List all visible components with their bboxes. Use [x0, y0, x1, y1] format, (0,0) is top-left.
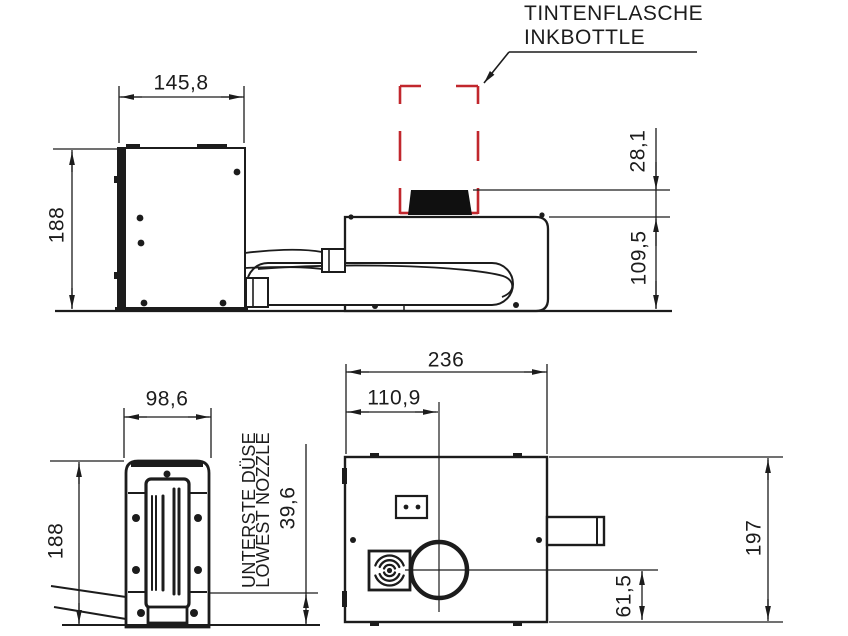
dim-head-front-height: 188: [46, 523, 67, 560]
drawing-canvas: [0, 0, 848, 636]
bottle-cap: [408, 190, 472, 215]
dim-controller-height: 109,5: [629, 230, 650, 285]
dim-head-front-width: 98,6: [146, 389, 189, 410]
side-spout: [547, 517, 604, 545]
print-head-side-view: [114, 144, 245, 310]
dim-bottle-offset: 110,9: [367, 388, 421, 409]
annotation-line2: INKBOTTLE: [524, 27, 645, 48]
dim-head-side-width: 145,8: [153, 73, 208, 94]
dim-controller-width: 236: [428, 350, 465, 371]
dim-head-side-height: 188: [47, 207, 68, 244]
technical-drawing-page: TINTENFLASCHE INKBOTTLE 145,8 188 28,1 1…: [0, 0, 848, 636]
controller-top-view: [342, 402, 658, 626]
power-connector: [396, 496, 427, 518]
nozzle-note-en: LOWEST NOZZLE: [254, 432, 272, 588]
dim-bottle-clearance: 28,1: [628, 130, 649, 173]
dim-controller-depth: 197: [744, 520, 765, 557]
annotation-leader: [484, 52, 697, 83]
dim-bottle-from-front: 61,5: [614, 575, 635, 618]
nfc-icon: [369, 551, 410, 590]
dim-lowest-nozzle: 39,6: [278, 487, 299, 530]
annotation-line1: TINTENFLASCHE: [524, 3, 703, 24]
